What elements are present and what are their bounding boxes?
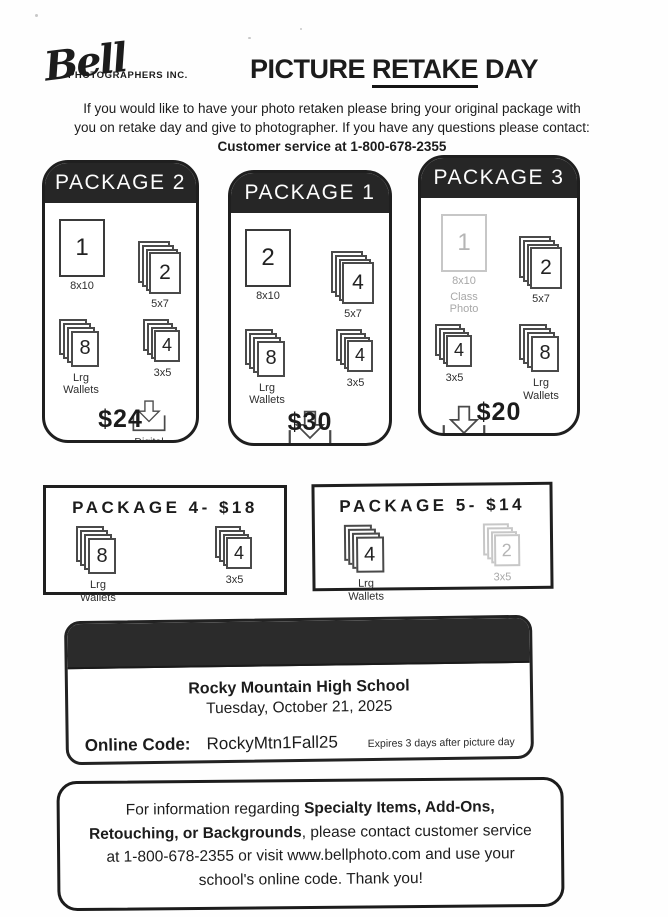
item-count: 2: [530, 247, 562, 289]
item-size-label: 3x5: [347, 377, 365, 390]
photo-stack-icon: 8: [59, 319, 103, 369]
item-count: 8: [531, 336, 559, 372]
item-sub-label: Class Photo: [435, 291, 493, 316]
item-size-label: Lrg Wallets: [247, 382, 287, 407]
package-row: 8Lrg Wallets43x5: [55, 319, 186, 397]
package-item-5x7: 45x7: [331, 251, 375, 321]
item-size-label: 3x5: [226, 574, 244, 587]
photo-stack-icon: 4: [143, 319, 182, 364]
item-size-label: 8x10: [452, 275, 476, 288]
photo-stack-icon: 2: [138, 241, 182, 295]
page-title-retake: RETAKE: [372, 54, 478, 88]
retake-day-flyer: Bell PHOTOGRAPHERS INC. PICTURE RETAKE D…: [0, 0, 668, 917]
page-title-post: DAY: [478, 54, 538, 84]
package-item-lrg-wallets: 4Lrg Wallets: [343, 524, 388, 603]
photo-stack-icon: 2: [482, 523, 521, 568]
item-count: 4: [446, 335, 472, 367]
package-item-5x7: 25x7: [138, 241, 182, 311]
item-size-label: Lrg Wallets: [78, 579, 118, 604]
photo-stack-icon: 4: [215, 526, 254, 571]
package-item-3x5: 43x5: [435, 324, 474, 385]
item-count: 4: [226, 537, 252, 569]
large-print-icon: 1: [441, 214, 487, 272]
photo-stack-icon: 4: [343, 524, 388, 574]
item-count: 2: [261, 244, 274, 272]
picture-day-date: Tuesday, October 21, 2025: [68, 696, 530, 720]
package-item-3x5: 43x5: [336, 329, 375, 390]
package-row: 18x1025x7: [55, 219, 186, 311]
item-count: 4: [347, 340, 373, 372]
scan-speck: [300, 28, 302, 30]
page-title: PICTURE RETAKE DAY: [250, 54, 538, 85]
package-item-5x7: 25x7: [519, 236, 563, 306]
item-size-label: 8x10: [256, 290, 280, 303]
customer-service-notice: For information regarding Specialty Item…: [56, 777, 564, 912]
item-count: 1: [457, 229, 470, 257]
package-card-3: PACKAGE 3 18x10Class Photo25x743x58Lrg W…: [418, 155, 580, 436]
package-row: 28x1045x7: [241, 229, 379, 321]
package-box-4: PACKAGE 4- $18 8Lrg Wallets43x5: [43, 485, 287, 595]
package-item-3x5: 23x5: [482, 523, 522, 602]
package-title: PACKAGE 2: [45, 163, 196, 203]
large-print-icon: 1: [59, 219, 105, 277]
photo-stack-icon: 2: [519, 236, 563, 290]
page-title-pre: PICTURE: [250, 54, 372, 84]
package-title: PACKAGE 3: [421, 158, 577, 198]
package-row: 18x10Class Photo25x7: [431, 214, 567, 316]
item-count: 4: [342, 262, 374, 304]
item-size-label: 3x5: [446, 372, 464, 385]
item-count: 4: [154, 330, 180, 362]
item-count: 2: [149, 252, 181, 294]
school-info-box: Rocky Mountain High School Tuesday, Octo…: [64, 615, 534, 766]
photo-stack-icon: 8: [245, 329, 289, 379]
school-box-header-bar: [67, 618, 530, 669]
package-item-lrg-wallets: 8Lrg Wallets: [519, 324, 563, 402]
item-size-label: 8x10: [70, 280, 94, 293]
package-item-8x10: 18x10Class Photo: [435, 214, 493, 316]
package-box-5: PACKAGE 5- $14 4Lrg Wallets23x5: [311, 482, 553, 592]
intro-paragraph: If you would like to have your photo ret…: [72, 100, 592, 157]
package-row: 8Lrg Wallets43x5: [241, 329, 379, 407]
code-expiry-note: Expires 3 days after picture day: [368, 736, 515, 750]
item-count: 1: [75, 234, 88, 262]
mini-package-contents: 8Lrg Wallets43x5: [46, 526, 284, 604]
item-count: 8: [88, 538, 116, 574]
package-row: 43x58Lrg Wallets: [431, 324, 567, 402]
mini-package-contents: 4Lrg Wallets23x5: [315, 523, 551, 604]
online-code-value: RockyMtn1Fall25: [206, 732, 338, 754]
online-code-label: Online Code:: [85, 735, 191, 756]
item-size-label: Lrg Wallets: [346, 577, 386, 603]
photo-stack-icon: 4: [331, 251, 375, 305]
package-item-3x5: 43x5: [215, 526, 254, 604]
online-code-row: Online Code: RockyMtn1Fall25 Expires 3 d…: [69, 730, 531, 756]
photo-stack-icon: 8: [519, 324, 563, 374]
mini-package-title: PACKAGE 5- $14: [315, 495, 550, 517]
scan-speck: [35, 14, 38, 17]
item-size-label: 3x5: [154, 367, 172, 380]
package-price: $20: [421, 398, 577, 427]
item-count: 2: [493, 534, 519, 566]
package-item-lrg-wallets: 8Lrg Wallets: [245, 329, 289, 407]
item-size-label: 5x7: [151, 298, 169, 311]
item-count: 8: [71, 331, 99, 367]
package-item-3x5: 43x5: [143, 319, 182, 380]
package-item-8x10: 18x10: [59, 219, 105, 293]
mini-package-title: PACKAGE 4- $18: [46, 498, 284, 518]
package-price: $30: [231, 408, 389, 437]
item-size-label: Digital Download: [120, 436, 178, 443]
scan-speck: [248, 37, 251, 39]
bell-logo: Bell PHOTOGRAPHERS INC.: [44, 42, 188, 81]
package-item-8x10: 28x10: [245, 229, 291, 303]
package-item-lrg-wallets: 8Lrg Wallets: [76, 526, 120, 604]
package-title: PACKAGE 1: [231, 173, 389, 213]
photo-stack-icon: 8: [76, 526, 120, 576]
package-card-2: PACKAGE 2 18x1025x78Lrg Wallets43x5Digit…: [42, 160, 199, 443]
item-size-label: 5x7: [532, 293, 550, 306]
package-price: $24: [45, 405, 196, 434]
photo-stack-icon: 4: [336, 329, 375, 374]
package-item-lrg-wallets: 8Lrg Wallets: [59, 319, 103, 397]
photo-stack-icon: 4: [435, 324, 474, 369]
package-card-1: PACKAGE 1 28x1045x78Lrg Wallets43x5Digit…: [228, 170, 392, 446]
item-size-label: Lrg Wallets: [61, 372, 101, 397]
item-count: 8: [257, 341, 285, 377]
item-size-label: 3x5: [493, 571, 511, 584]
item-count: 4: [355, 537, 383, 573]
item-size-label: 5x7: [344, 308, 362, 321]
large-print-icon: 2: [245, 229, 291, 287]
